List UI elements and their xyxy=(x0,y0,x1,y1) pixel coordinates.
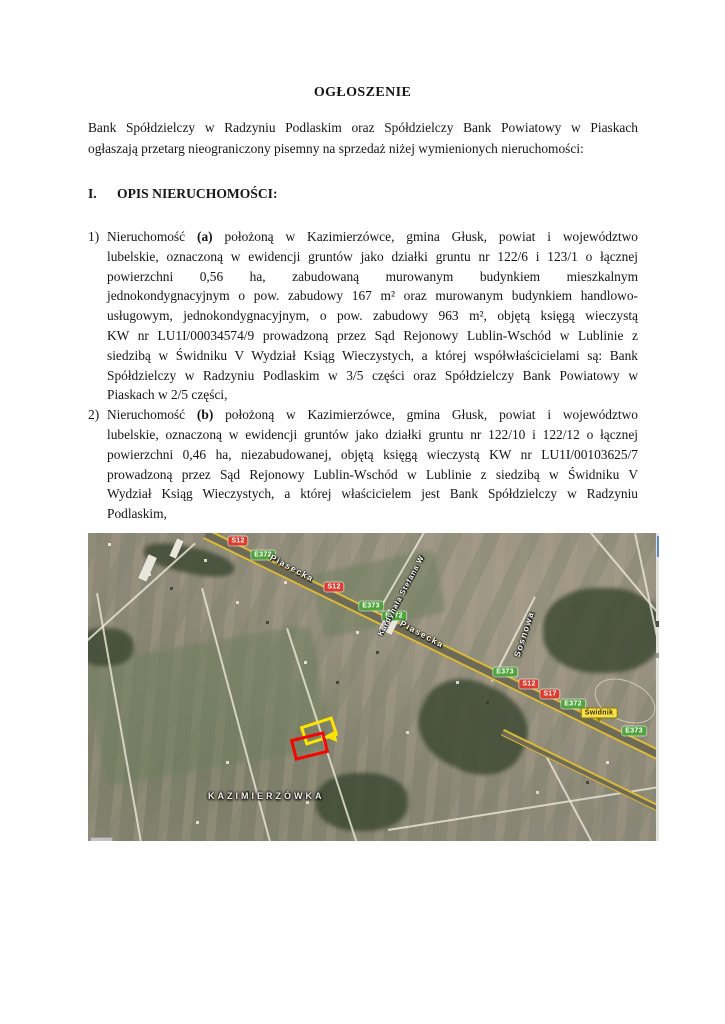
body-line: KW nr LU1I/00034574/9 prowadzoną przez S… xyxy=(107,326,638,346)
forest-patch xyxy=(316,773,408,831)
body-line: Spółdzielczy w Radzyniu Podlaskim w 3/5 … xyxy=(107,366,638,386)
route-badge-s12: S12 xyxy=(228,537,247,546)
route-badge-s12: S12 xyxy=(324,583,343,592)
route-badge-s12: S12 xyxy=(519,680,538,689)
map-right-edge-strip xyxy=(656,533,659,841)
body-line: siedzibą w Świdniku V Wydział Ksiąg Wiec… xyxy=(107,346,638,366)
forest-patch xyxy=(543,588,659,673)
section-title: OPIS NIERUCHOMOŚCI: xyxy=(117,186,278,201)
section-heading: I.OPIS NIERUCHOMOŚCI: xyxy=(88,186,278,202)
section-numeral: I. xyxy=(88,186,117,202)
satellite-map-image: S12 E372 S12 E373 E372 E373 S12 S17 E372… xyxy=(88,533,659,841)
body-line: prowadzoną przez Sąd Rejonowy Lublin-Wsc… xyxy=(107,465,638,485)
route-badge-e373: E373 xyxy=(359,602,383,611)
route-badge-s17: S17 xyxy=(540,690,559,699)
place-label-kazimierzowka: KAZIMIERZÓWKA xyxy=(208,791,325,801)
body-line: Piaskach w 2/5 części, xyxy=(107,385,638,405)
document-page: OGŁOSZENIE Bank Spółdzielczy w Radzyniu … xyxy=(0,0,725,1024)
body-line: Nieruchomość (a) położoną w Kazimierzówc… xyxy=(107,227,638,247)
body-line: Wydział Ksiąg Wieczystych, a której właś… xyxy=(107,484,638,504)
intro-line: ogłaszają przetarg nieograniczony pisemn… xyxy=(88,139,638,160)
town-badge-swidnik: Świdnik xyxy=(581,708,618,719)
building-cluster xyxy=(108,543,111,546)
document-title: OGŁOSZENIE xyxy=(0,85,725,101)
body-line: lubelskie, oznaczoną w ewidencji gruntów… xyxy=(107,425,638,445)
map-right-edge-mark xyxy=(657,536,659,557)
intro-paragraph: Bank Spółdzielczy w Radzyniu Podlaskim o… xyxy=(88,118,638,160)
list-marker: 2) xyxy=(88,405,99,425)
body-line: usługowym, jednokondygnacyjnym, o pow. z… xyxy=(107,306,638,326)
town-badge-pointer xyxy=(596,718,602,722)
body-line: jednokondygnacyjnym o pow. zabudowy 167 … xyxy=(107,286,638,306)
body-line: powierzchni 0,56 ha, zabudowaną murowany… xyxy=(107,267,638,287)
list-marker: 1) xyxy=(88,227,99,247)
body-line: Nieruchomość (b) położoną w Kazimierzówc… xyxy=(107,405,638,425)
map-right-edge-mark xyxy=(656,621,659,627)
map-scale-bar xyxy=(90,837,113,841)
list-item-property-b: 2) Nieruchomość (b) położoną w Kazimierz… xyxy=(88,405,638,524)
body-line: lubelskie, oznaczoną w ewidencji gruntów… xyxy=(107,247,638,267)
list-item-body: Nieruchomość (b) położoną w Kazimierzówc… xyxy=(107,405,638,524)
route-badge-e373: E373 xyxy=(493,668,517,677)
road-line xyxy=(388,786,657,831)
body-line: Podlaskim, xyxy=(107,504,638,524)
list-item-property-a: 1) Nieruchomość (a) położoną w Kazimierz… xyxy=(88,227,638,405)
intro-line: Bank Spółdzielczy w Radzyniu Podlaskim o… xyxy=(88,118,638,139)
property-list: 1) Nieruchomość (a) położoną w Kazimierz… xyxy=(88,227,638,524)
list-item-body: Nieruchomość (a) położoną w Kazimierzówc… xyxy=(107,227,638,405)
route-badge-e373: E373 xyxy=(622,727,646,736)
map-right-edge-mark xyxy=(656,653,659,658)
body-line: powierzchni 0,46 ha, niezabudowanej, obj… xyxy=(107,445,638,465)
